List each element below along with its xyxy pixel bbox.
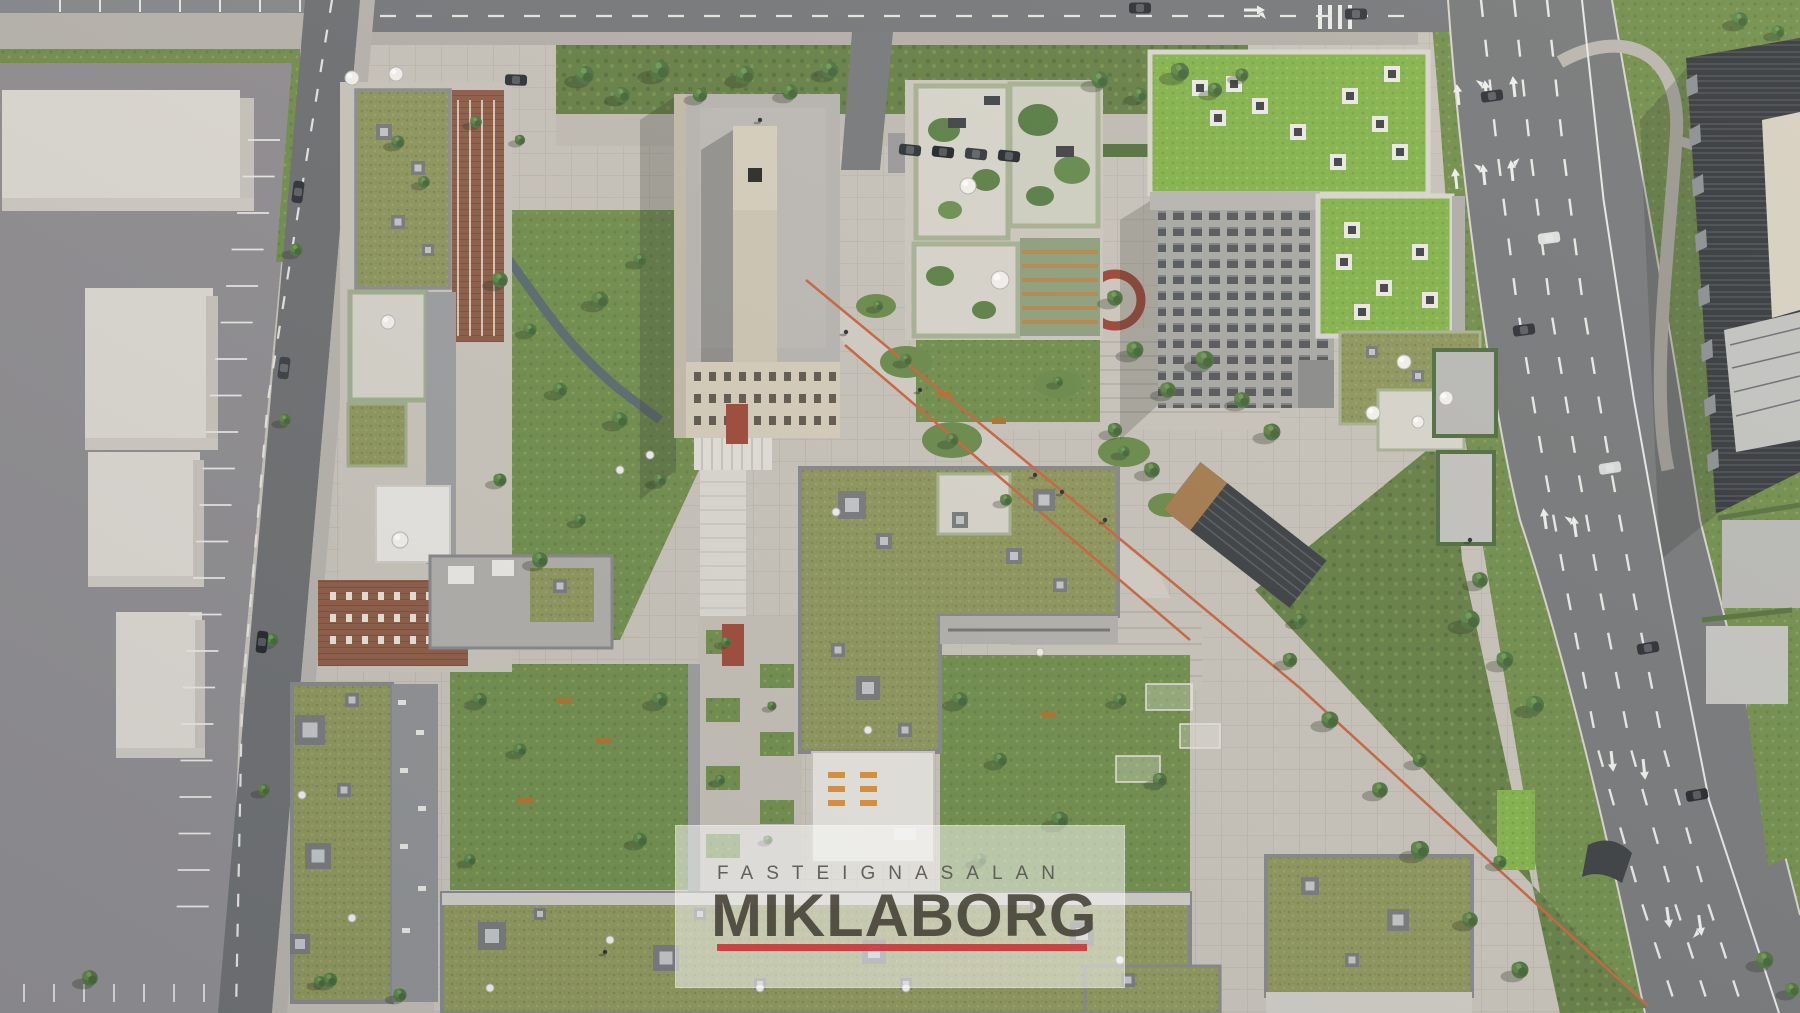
top-parking-asphalt: [0, 0, 322, 13]
gray-block-b: [1706, 626, 1788, 704]
grand-stair: [700, 468, 746, 630]
aerial-render: FASTEIGNASALAN MIKLABORG: [0, 0, 1800, 1013]
gray-block-a: [1722, 520, 1800, 608]
top-road: [318, 0, 1462, 36]
brick-pillar: [726, 404, 748, 444]
top-sidewalk: [0, 13, 322, 49]
watermark-red-bar: [717, 944, 1087, 951]
tower-vent: [748, 168, 762, 182]
watermark-title: MIKLABORG: [711, 881, 1098, 950]
sage-cluster: [905, 80, 1103, 340]
grass-strip: [0, 49, 300, 63]
watermark-panel: FASTEIGNASALAN MIKLABORG: [675, 825, 1125, 988]
